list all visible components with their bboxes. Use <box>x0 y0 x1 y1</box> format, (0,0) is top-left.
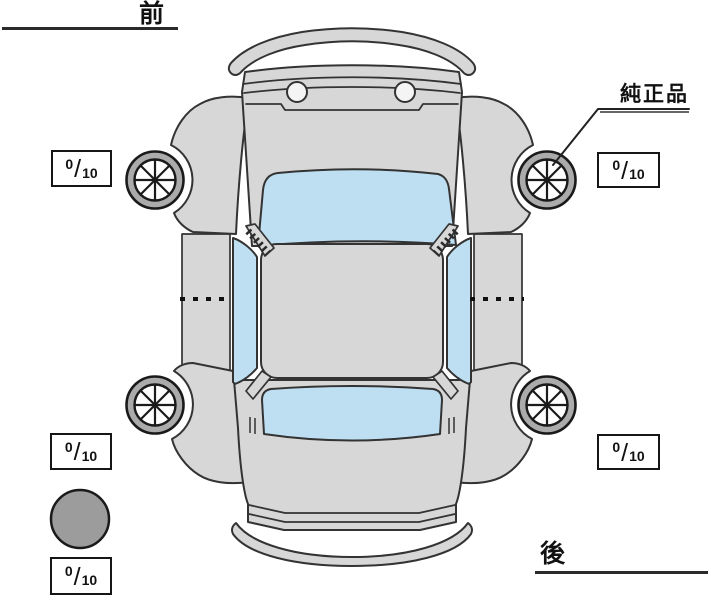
tire-score-spare-value: 0 <box>65 563 73 579</box>
tire-score-front-left-max: 10 <box>82 165 98 181</box>
tire-score-rear-left-max: 10 <box>82 448 98 464</box>
genuine-part-label: 純正品 <box>620 83 689 106</box>
front-label: 前 <box>139 1 164 29</box>
score-separator: / <box>621 159 628 184</box>
side-window-left <box>233 238 257 384</box>
side-window-right <box>447 238 471 384</box>
score-separator: / <box>621 441 628 466</box>
car-top-view <box>0 0 711 600</box>
front-underline <box>2 27 178 30</box>
tire-score-rear-left-value: 0 <box>65 439 73 455</box>
wheel-rear-right-icon <box>519 377 576 434</box>
score-separator: / <box>74 565 81 590</box>
tire-score-rear-right-max: 10 <box>629 448 645 464</box>
roof <box>261 244 443 378</box>
score-separator: / <box>74 440 81 465</box>
fender-front-left <box>171 97 249 234</box>
tire-score-rear-right-value: 0 <box>612 439 620 455</box>
door-panel-left <box>182 234 230 374</box>
tire-score-front-right: 0 / 10 <box>597 152 660 188</box>
wheel-front-right-icon <box>519 152 576 209</box>
score-separator: / <box>74 157 81 182</box>
windshield <box>258 169 456 246</box>
tire-score-front-left-value: 0 <box>65 156 73 172</box>
door-panel-right <box>474 234 522 374</box>
headlight-right-icon <box>395 82 415 102</box>
tire-score-front-right-value: 0 <box>612 157 620 173</box>
tire-score-front-right-max: 10 <box>629 166 645 182</box>
tire-score-rear-right: 0 / 10 <box>597 434 660 470</box>
tire-score-spare: 0 / 10 <box>50 557 112 595</box>
rear-window <box>262 386 442 441</box>
rear-underline <box>535 571 708 574</box>
vehicle-inspection-diagram: 前 後 純正品 0 / 10 0 / 10 0 / 10 0 / 10 0 / … <box>0 0 711 600</box>
wheel-front-left-icon <box>127 152 184 209</box>
tire-score-rear-left: 0 / 10 <box>50 433 112 470</box>
spare-tire-icon <box>51 490 109 548</box>
tire-score-front-left: 0 / 10 <box>51 150 112 187</box>
rear-label: 後 <box>540 541 565 569</box>
tire-score-spare-max: 10 <box>82 572 98 588</box>
headlight-left-icon <box>287 82 307 102</box>
wheel-rear-left-icon <box>127 377 184 434</box>
